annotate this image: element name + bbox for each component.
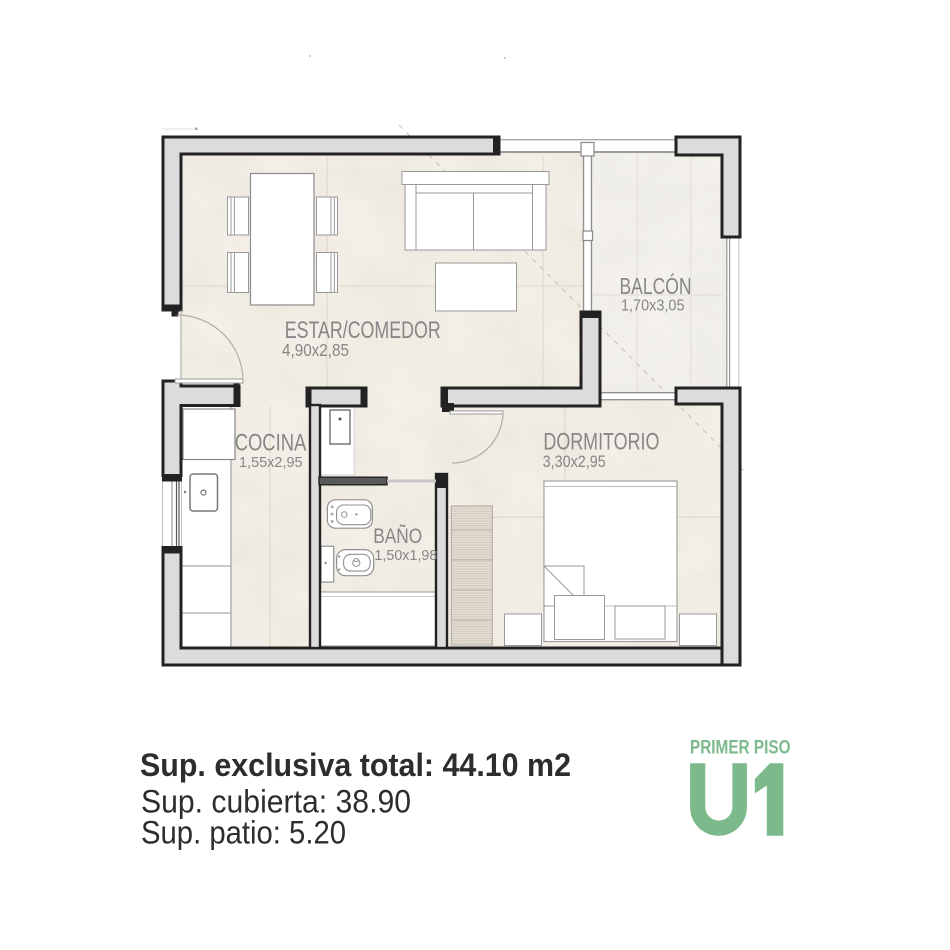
svg-text:BALCÓN: BALCÓN xyxy=(620,273,692,299)
svg-text:3,30x2,95: 3,30x2,95 xyxy=(543,453,606,471)
svg-text:1,55x2,95: 1,55x2,95 xyxy=(239,455,303,471)
svg-text:DORMITORIO: DORMITORIO xyxy=(543,429,659,456)
svg-text:BAÑO: BAÑO xyxy=(373,523,422,548)
svg-text:4,90x2,85: 4,90x2,85 xyxy=(282,340,349,360)
svg-text:Sup. patio: 5.20: Sup. patio: 5.20 xyxy=(141,815,346,851)
svg-text:PRIMER PISO: PRIMER PISO xyxy=(690,738,791,759)
svg-text:COCINA: COCINA xyxy=(235,430,307,457)
svg-text:Sup. exclusiva total: 44.10 m2: Sup. exclusiva total: 44.10 m2 xyxy=(140,747,571,783)
svg-text:1,70x3,05: 1,70x3,05 xyxy=(621,298,685,315)
svg-text:1,50x1,98: 1,50x1,98 xyxy=(374,548,437,564)
